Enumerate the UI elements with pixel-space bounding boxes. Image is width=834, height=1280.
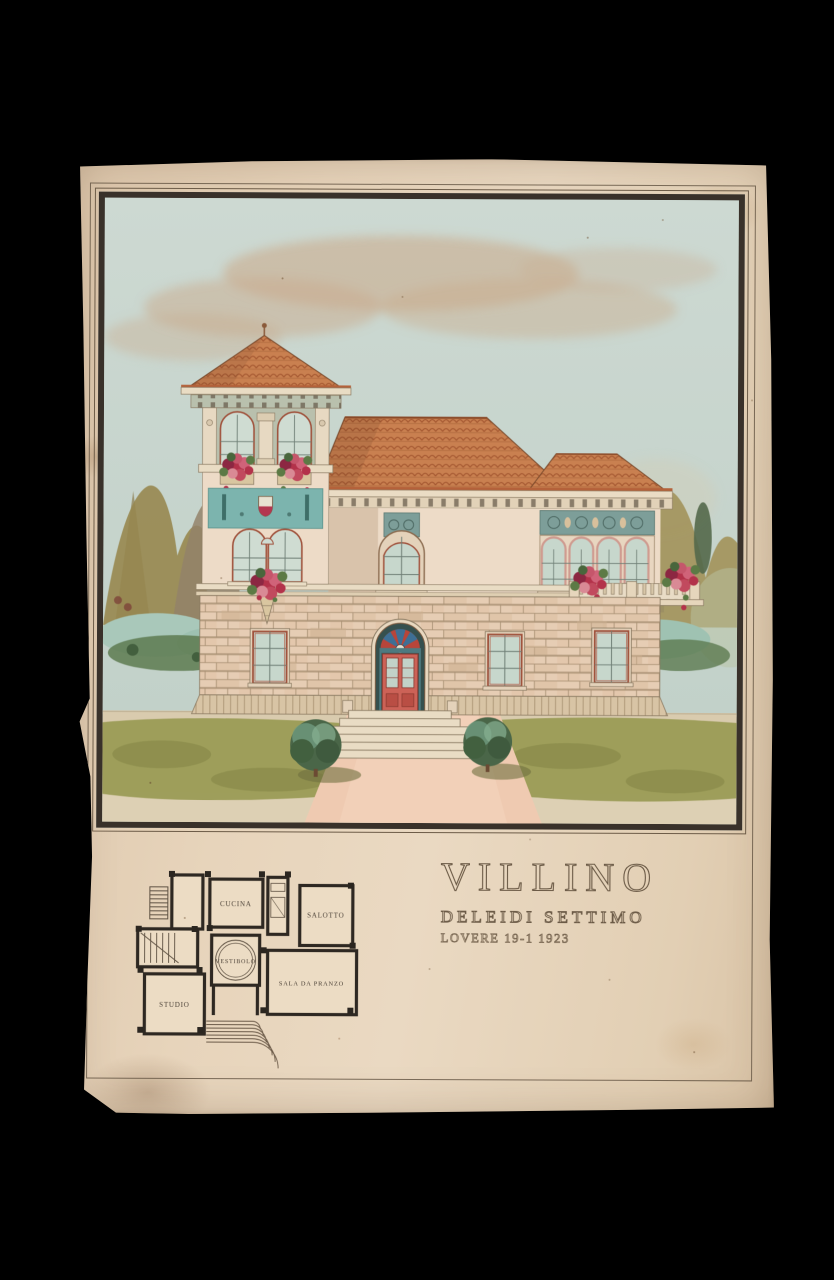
subtitle-text: DELEIDI SETTIMO: [441, 907, 646, 927]
room-label-studio: STUDIO: [159, 1001, 190, 1009]
entrance-fan-steps: [206, 1021, 278, 1068]
drawing-sheet: VILLINO DELEIDI SETTIMO LOVERE 19-1 1923: [68, 156, 778, 1116]
painting-frame: [96, 192, 745, 831]
photograph: VILLINO DELEIDI SETTIMO LOVERE 19-1 1923: [0, 0, 834, 1280]
title-text: VILLINO: [441, 854, 659, 900]
ground-window-mid-right: [483, 631, 527, 690]
ground-window-far-right: [590, 628, 634, 687]
place-date-text: LOVERE 19-1 1923: [441, 931, 570, 946]
room-label-vestibolo: VESTIBOLO: [215, 959, 256, 965]
floor-plan: CUCINA SALOTTO VESTIBOLO SALA DA PRANZO …: [134, 857, 379, 1076]
elevation-painting: [92, 188, 749, 835]
room-label-cucina: CUCINA: [220, 900, 252, 908]
ground-window-left: [248, 628, 292, 687]
entrance-door: [371, 619, 429, 715]
room-label-salotto: SALOTTO: [307, 911, 344, 919]
plan-walls: [137, 875, 357, 1035]
elevation-scene: [102, 198, 739, 825]
room-label-sala-da-pranzo: SALA DA PRANZO: [279, 980, 344, 987]
title-block: VILLINO DELEIDI SETTIMO LOVERE 19-1 1923: [437, 848, 697, 959]
